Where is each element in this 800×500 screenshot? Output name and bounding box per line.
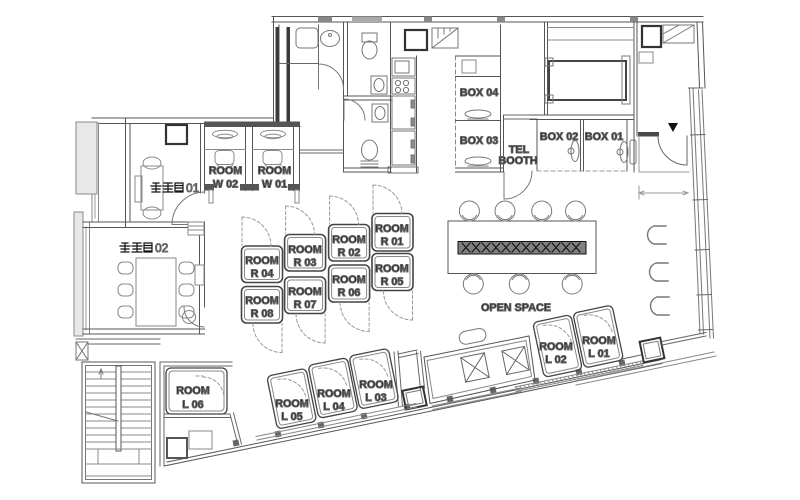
- svg-text:ROOM: ROOM: [258, 165, 292, 177]
- svg-text:ROOM: ROOM: [288, 286, 322, 298]
- svg-text:ROOM: ROOM: [332, 274, 366, 286]
- svg-text:ROOM: ROOM: [245, 295, 279, 307]
- svg-text:ROOM: ROOM: [539, 341, 573, 353]
- svg-text:R 02: R 02: [338, 247, 361, 259]
- svg-text:ROOM: ROOM: [582, 335, 616, 347]
- svg-text:W 01: W 01: [262, 179, 287, 191]
- svg-text:BOX 02: BOX 02: [540, 131, 578, 143]
- svg-text:ROOM: ROOM: [332, 234, 366, 246]
- svg-text:ROOM: ROOM: [375, 263, 409, 275]
- svg-text:R 03: R 03: [294, 257, 317, 269]
- svg-text:R 04: R 04: [251, 268, 274, 280]
- svg-text:ROOM: ROOM: [317, 388, 351, 400]
- svg-text:L 06: L 06: [182, 399, 203, 411]
- svg-text:ROOM: ROOM: [176, 385, 210, 397]
- svg-text:ROOM: ROOM: [359, 379, 393, 391]
- svg-text:L 02: L 02: [545, 354, 566, 366]
- svg-text:R 08: R 08: [251, 308, 274, 320]
- svg-text:ROOM: ROOM: [375, 223, 409, 235]
- svg-text:R 07: R 07: [294, 299, 317, 311]
- svg-text:BOX 04: BOX 04: [460, 87, 498, 99]
- svg-text:02: 02: [155, 241, 169, 255]
- svg-text:ROOM: ROOM: [275, 398, 309, 410]
- svg-text:R 06: R 06: [338, 287, 361, 299]
- svg-text:L 03: L 03: [365, 392, 386, 404]
- svg-text:ROOM: ROOM: [288, 244, 322, 256]
- svg-text:BOX 01: BOX 01: [585, 131, 623, 143]
- svg-text:L 01: L 01: [588, 348, 609, 360]
- svg-text:R 01: R 01: [381, 236, 404, 248]
- svg-text:ROOM: ROOM: [245, 255, 279, 267]
- svg-text:ROOM: ROOM: [209, 165, 243, 177]
- svg-text:L 05: L 05: [281, 411, 302, 423]
- svg-text:BOOTH: BOOTH: [499, 155, 538, 167]
- svg-text:R 05: R 05: [381, 276, 404, 288]
- svg-text:W 02: W 02: [213, 179, 238, 191]
- svg-text:L 04: L 04: [323, 401, 344, 413]
- svg-text:OPEN SPACE: OPEN SPACE: [481, 302, 551, 314]
- svg-text:BOX 03: BOX 03: [460, 135, 498, 147]
